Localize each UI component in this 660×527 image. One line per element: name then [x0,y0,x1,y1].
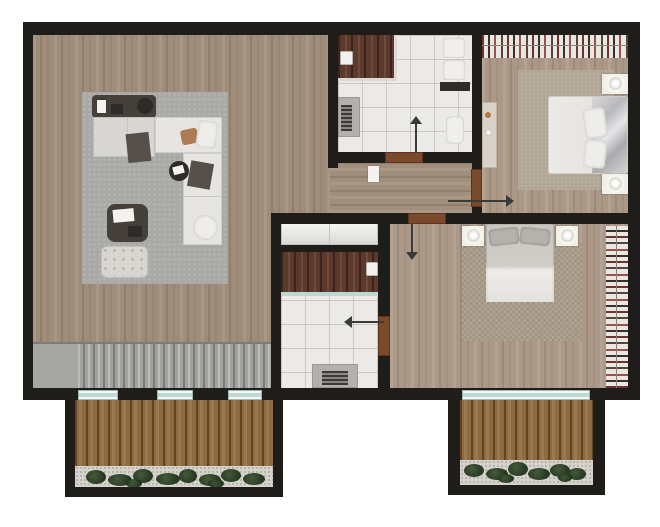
wall-midblock-east-lower [378,356,390,388]
staircase-treads [78,343,273,388]
ottoman [101,246,148,278]
bath1-sink [340,51,353,65]
bath2-sink [366,262,378,276]
bedroom2-wardrobe [606,226,628,388]
sofa-throw [126,132,152,163]
bedroom1-lamp-top [609,77,622,90]
window-3 [228,390,262,400]
bath1-counter-edge-bottom [338,78,397,81]
bath1-door [385,152,423,163]
wall-bath1-west [328,22,338,168]
balcony-left-wall-south [65,487,283,497]
bedroom1-wardrobe [482,34,628,58]
bath1-towel-1 [443,38,465,58]
wall-right [628,22,640,400]
window-1 [78,390,118,400]
bedroom2-door [408,213,446,224]
coffee-table-book [112,208,134,223]
sofa-pillow-round [193,215,218,240]
stairs-top-edge [33,342,273,344]
window-2 [157,390,193,400]
wall-bedrooms-divider-right [446,213,632,224]
wall-midblock-east-upper [378,224,390,316]
wall-bedroom1-west [472,22,482,170]
bath2-shower-drain [322,371,348,385]
bedroom1-lamp-bottom [609,177,622,190]
plant-4 [156,473,180,485]
bath1-towel-2 [443,60,465,80]
wall-midblock-split [281,245,388,252]
sofa-pillow-dark [187,160,214,190]
bath1-toilet [446,116,464,144]
balcony-right-wall-south [448,485,605,495]
bath1-counter-edge-right [394,35,397,81]
bath2-vanity [281,252,378,292]
plant-17 [498,474,514,483]
bedroom2-pillow-right [519,226,551,246]
balcony-right-wall-east [593,400,605,495]
balcony-left-wall-east [273,400,283,497]
plant-14 [528,468,550,480]
bedroom2-lamp-right [561,229,574,242]
hall-closet-seam [329,222,330,245]
bath1-shower-drain [341,105,352,131]
bedroom1-door-arrowhead [506,195,520,207]
console-device [111,104,123,114]
wall-bath1-south-left [328,152,385,163]
plant-5 [179,469,197,483]
bedroom1-bed-pillow-1 [582,107,608,140]
corridor-shelf [368,166,379,182]
console-card [97,100,106,113]
dresser-decor-1 [485,112,491,118]
balcony-left-wall-west [65,400,75,497]
bedroom2-wardrobe-rail [616,226,617,388]
bedroom2-door-arrow [411,224,413,254]
bath2-door-arrowhead [338,316,352,328]
balcony-right-wall-west [448,400,460,495]
floor-plan [0,0,660,527]
bedroom1-bed-pillow-2 [583,139,608,169]
plant-13 [508,462,528,476]
bath1-shelf [440,82,470,91]
bedroom1-wardrobe-rail [482,45,628,46]
bedroom1-door-arrow [448,200,508,202]
bath2-glass-screen [281,292,378,296]
coffee-table-tray [128,226,142,237]
plant-11 [464,464,484,477]
bath1-door-arrowhead [410,110,422,124]
sofa-pillow-white [195,120,219,150]
wall-left [23,22,33,400]
bedroom2-pillow-left [488,226,520,246]
sliding-door-glazing [462,390,590,400]
bedroom2-blanket [486,266,554,302]
console-tray [137,98,153,114]
plant-7 [221,469,241,482]
stairs-landing [33,343,78,388]
plant-8 [243,473,265,485]
wall-midblock-west [271,213,281,388]
plant-18 [558,473,572,482]
bedroom2-lamp-left [467,229,480,242]
wall-bedrooms-divider-left [271,213,408,224]
bedroom2-door-arrowhead [406,252,418,266]
sofa-seam-2 [184,196,221,197]
corridor-floor [330,163,472,213]
dresser-decor-2 [486,130,491,135]
plant-1 [86,470,106,484]
